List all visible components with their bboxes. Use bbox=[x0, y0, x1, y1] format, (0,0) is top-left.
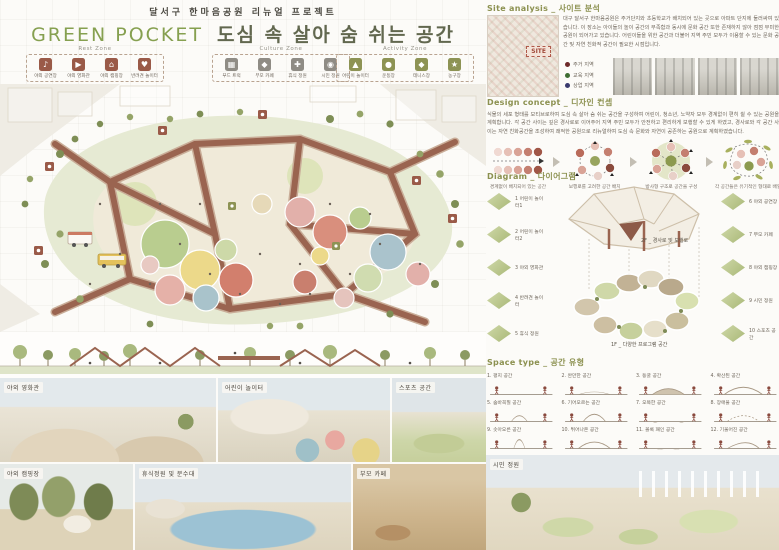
zone-item-icon: ▶ bbox=[72, 58, 85, 71]
space-type-section: Space type _ 공간 유형 1. 평지 공간 bbox=[487, 357, 779, 450]
render-photo: 야외 캠핑장 bbox=[0, 464, 133, 550]
zone-item-label: 부모 카페 bbox=[255, 73, 273, 79]
zone-item-label: 야외 캠핑장 bbox=[100, 73, 123, 79]
space-type-item: 9. 솟아오른 공간 bbox=[487, 426, 556, 450]
diagram-thumbnail bbox=[487, 193, 511, 210]
diagram-thumbnail bbox=[721, 325, 745, 342]
diagram-thumbnail bbox=[721, 259, 745, 276]
site-analysis-header: Site analysis _ 사이트 분석 bbox=[487, 3, 779, 14]
site-photo bbox=[698, 58, 737, 95]
site-photo bbox=[655, 58, 694, 95]
zone-item-icon: ♪ bbox=[39, 58, 52, 71]
site-legend-label: 교육 지역 bbox=[573, 72, 594, 79]
diagram-thumbnail bbox=[487, 325, 511, 342]
render-caption: 야외 영화관 bbox=[4, 382, 43, 393]
diagram-section: Diagram _ 다이어그램 1 어린이 놀이터1 2 어린이 놀이터2 3 … bbox=[487, 171, 779, 355]
legend-dot-icon bbox=[565, 73, 570, 78]
diagram-item: 6 야외 공연장 bbox=[721, 185, 779, 218]
space-type-label: 3. 동굴 공간 bbox=[636, 372, 705, 379]
legend-item: ▲ 어린이 놀이터 bbox=[342, 58, 369, 79]
space-type-sketch bbox=[562, 433, 631, 450]
zone-item-label: 어린이 놀이터 bbox=[342, 73, 369, 79]
space-type-item: 10. 튀어나온 공간 bbox=[562, 426, 631, 450]
diagram-item-label: 10 스포츠 공간 bbox=[749, 327, 779, 341]
zone-item-label: 휴식 정원 bbox=[288, 73, 306, 79]
space-type-label: 6. 기어오르는 공간 bbox=[562, 399, 631, 406]
space-type-sketch bbox=[562, 406, 631, 423]
diagram-list-right: 6 야외 공연장 7 부모 카페 8 야외 캠핑장 9 시민 정원 10 스포츠… bbox=[721, 185, 779, 350]
zone-item-icon: ▦ bbox=[225, 58, 238, 71]
stick-figures bbox=[719, 414, 770, 422]
zone-item-label: 농구장 bbox=[448, 73, 461, 79]
space-type-header: Space type _ 공간 유형 bbox=[487, 357, 779, 368]
render-photo: 부모 카페 bbox=[353, 464, 486, 550]
legend-item: ♪ 야외 공연장 bbox=[32, 58, 59, 79]
site-analysis-section: Site analysis _ 사이트 분석 SITE 대구 달서구 한마음공원… bbox=[487, 3, 779, 14]
space-type-sketch bbox=[711, 379, 779, 396]
stick-figures bbox=[495, 414, 546, 422]
space-type-item: 1. 평지 공간 bbox=[487, 372, 556, 396]
diagram-thumbnail bbox=[721, 226, 745, 243]
render-row-1: 야외 영화관 어린이 놀이터 스포츠 공간 bbox=[0, 378, 486, 462]
space-type-sketch bbox=[636, 406, 705, 423]
render-caption: 야외 캠핑장 bbox=[4, 468, 43, 479]
legend-item: ★ 농구장 bbox=[441, 58, 468, 79]
zone-item-icon: ✚ bbox=[291, 58, 304, 71]
site-photos bbox=[613, 58, 779, 95]
zone-item-icon: ★ bbox=[448, 58, 461, 71]
header: 달서구 한마음공원 리뉴얼 프로젝트 GREEN POCKET 도심 속 살아 … bbox=[0, 5, 486, 47]
zone-item-label: 야외 공연장 bbox=[34, 73, 57, 79]
space-type-sketch bbox=[487, 406, 556, 423]
diagram-thumbnail bbox=[487, 259, 511, 276]
diagram-item: 3 야외 영화관 bbox=[487, 251, 547, 284]
stick-figures bbox=[495, 387, 546, 395]
space-type-label: 9. 솟아오른 공간 bbox=[487, 426, 556, 433]
zone-item-label: 테니스장 bbox=[413, 73, 430, 79]
space-type-item: 3. 동굴 공간 bbox=[636, 372, 705, 396]
space-type-item: 7. 오목한 공간 bbox=[636, 399, 705, 423]
diagram-thumbnail bbox=[721, 292, 745, 309]
diagram-item-label: 3 야외 영화관 bbox=[515, 264, 543, 271]
stick-figures bbox=[644, 414, 695, 422]
space-type-label: 10. 튀어나온 공간 bbox=[562, 426, 631, 433]
culture-zone-legend: Culture Zone ▦ 푸드 트럭 ◆ 부모 카페 ✚ 휴식 정원 ◉ bbox=[212, 54, 350, 82]
stick-figures bbox=[570, 387, 621, 395]
legend-dot-icon bbox=[565, 83, 570, 88]
diagram-item-label: 9 시민 정원 bbox=[749, 297, 773, 304]
section-platform bbox=[218, 356, 280, 360]
hero-render: 시민 정원 bbox=[486, 455, 779, 550]
space-type-sketch bbox=[636, 379, 705, 396]
arrow-right-icon bbox=[706, 157, 713, 167]
arrow-right-icon bbox=[630, 157, 637, 167]
diagram-thumbnail bbox=[721, 193, 745, 210]
space-type-label: 2. 완만한 공간 bbox=[562, 372, 631, 379]
zone-item-label: 반려견 놀이터 bbox=[131, 73, 158, 79]
render-caption: 어린이 놀이터 bbox=[222, 382, 267, 393]
legend-item: ▦ 푸드 트럭 bbox=[218, 58, 245, 79]
zone-item-icon: ▲ bbox=[349, 58, 362, 71]
render-photo: 휴식정원 및 분수대 bbox=[135, 464, 351, 550]
site-legend-item: 주거 지역 bbox=[565, 61, 609, 68]
activity-zone-legend: Activity Zone ▲ 어린이 놀이터 ● 운동장 ◆ 테니스장 ★ bbox=[336, 54, 474, 82]
space-type-sketch bbox=[711, 406, 779, 423]
zone-item-icon: ◆ bbox=[258, 58, 271, 71]
render-caption: 부모 카페 bbox=[357, 468, 390, 479]
diagram-item: 9 시민 정원 bbox=[721, 284, 779, 317]
site-legend-label: 주거 지역 bbox=[573, 61, 594, 68]
activity-zone-title: Activity Zone bbox=[337, 46, 473, 52]
zone-item-label: 야외 영화관 bbox=[67, 73, 90, 79]
render-photo: 야외 영화관 bbox=[0, 378, 216, 462]
stick-figures bbox=[719, 441, 770, 449]
legend-dot-icon bbox=[565, 62, 570, 67]
legend-item: ◆ 부모 카페 bbox=[251, 58, 278, 79]
masterplan-illustration bbox=[0, 84, 486, 332]
right-panel: Site analysis _ 사이트 분석 SITE 대구 달서구 한마음공원… bbox=[487, 0, 779, 455]
legend-item: ⌂ 야외 캠핑장 bbox=[98, 58, 125, 79]
space-type-item: 11. 볼록 패인 공간 bbox=[636, 426, 705, 450]
render-row-2: 야외 캠핑장 휴식정원 및 분수대 부모 카페 bbox=[0, 464, 486, 550]
legend-item: ♥ 반려견 놀이터 bbox=[131, 58, 158, 79]
site-photo bbox=[613, 58, 652, 95]
diagram-thumbnail bbox=[487, 226, 511, 243]
render-caption: 휴식정원 및 분수대 bbox=[139, 468, 198, 479]
zone-item-label: 운동장 bbox=[382, 73, 395, 79]
section-elevation bbox=[0, 332, 486, 378]
project-subtitle: 달서구 한마음공원 리뉴얼 프로젝트 bbox=[0, 5, 486, 18]
space-type-item: 8. 장애물 공간 bbox=[711, 399, 779, 423]
culture-zone-title: Culture Zone bbox=[213, 46, 349, 52]
space-type-sketch bbox=[636, 433, 705, 450]
diagram-item-label: 7 부모 카페 bbox=[749, 231, 773, 238]
diagram-item: 10 스포츠 공간 bbox=[721, 317, 779, 350]
render-caption: 스포츠 공간 bbox=[396, 382, 435, 393]
render-photo: 스포츠 공간 bbox=[392, 378, 486, 462]
legend-item: ● 운동장 bbox=[375, 58, 402, 79]
lower-program-cells bbox=[574, 270, 699, 340]
site-legend: 주거 지역 교육 지역 상업 지역 bbox=[565, 61, 609, 93]
floor2-label: 2F _ 경사로 및 보행로 bbox=[641, 237, 688, 244]
zone-item-icon: ⌂ bbox=[105, 58, 118, 71]
space-type-label: 4. 확산된 공간 bbox=[711, 372, 779, 379]
space-type-label: 8. 장애물 공간 bbox=[711, 399, 779, 406]
space-type-label: 5. 숨바꼭질 공간 bbox=[487, 399, 556, 406]
diagram-item: 1 어린이 놀이터1 bbox=[487, 185, 547, 218]
legend-item: ✚ 휴식 정원 bbox=[284, 58, 311, 79]
site-legend-item: 상업 지역 bbox=[565, 82, 609, 89]
arrow-right-icon bbox=[553, 157, 560, 167]
section-trees bbox=[13, 344, 470, 366]
floor1-label: 1F _ 다양한 프로그램 공간 bbox=[611, 341, 667, 348]
rest-zone-legend: Rest Zone ♪ 야외 공연장 ▶ 야외 영화관 ⌂ 야외 캠핑장 ♥ bbox=[26, 54, 164, 82]
site-map-label: SITE bbox=[526, 46, 551, 57]
space-type-sketch bbox=[487, 433, 556, 450]
space-type-sketch bbox=[711, 433, 779, 450]
zone-item-label: 푸드 트럭 bbox=[222, 73, 240, 79]
space-type-label: 1. 평지 공간 bbox=[487, 372, 556, 379]
diagram-item-label: 6 야외 공연장 bbox=[749, 198, 777, 205]
space-type-label: 11. 볼록 패인 공간 bbox=[636, 426, 705, 433]
space-type-item: 12. 기울어진 공간 bbox=[711, 426, 779, 450]
diagram-item: 7 부모 카페 bbox=[721, 218, 779, 251]
diagram-item-label: 4 반려견 놀이터 bbox=[515, 294, 547, 308]
zone-legend-bar: Rest Zone ♪ 야외 공연장 ▶ 야외 영화관 ⌂ 야외 캠핑장 ♥ bbox=[0, 42, 486, 84]
site-legend-item: 교육 지역 bbox=[565, 72, 609, 79]
legend-item: ◆ 테니스장 bbox=[408, 58, 435, 79]
space-type-item: 6. 기어오르는 공간 bbox=[562, 399, 631, 423]
design-concept-text: 식물의 세포 형태를 모티브로하여 도심 속 살아 숨 쉬는 공간을 구성하여 … bbox=[487, 111, 779, 136]
space-type-sketch bbox=[562, 379, 631, 396]
space-type-label: 7. 오목한 공간 bbox=[636, 399, 705, 406]
site-analysis-text: 대구 달서구 한마음공원은 주거단지와 초등학교가 배치되어 있는 곳으로 아파… bbox=[563, 15, 779, 49]
space-type-item: 4. 확산된 공간 bbox=[711, 372, 779, 396]
space-type-sketch bbox=[487, 379, 556, 396]
zone-item-icon: ♥ bbox=[138, 58, 151, 71]
site-legend-label: 상업 지역 bbox=[573, 82, 594, 89]
site-photo bbox=[740, 58, 779, 95]
diagram-item-label: 2 어린이 놀이터2 bbox=[515, 228, 547, 242]
space-type-item: 5. 숨바꼭질 공간 bbox=[487, 399, 556, 423]
exploded-axon-diagram: 2F _ 경사로 및 보행로 1F _ 다양한 프로그램 공간 bbox=[549, 179, 719, 355]
space-type-grid: 1. 평지 공간 2. 완만한 공간 bbox=[487, 372, 779, 450]
masterplan-svg bbox=[0, 84, 486, 332]
design-concept-header: Design concept _ 디자인 컨셉 bbox=[487, 97, 779, 108]
space-type-label: 12. 기울어진 공간 bbox=[711, 426, 779, 433]
zone-item-icon: ◆ bbox=[415, 58, 428, 71]
rest-zone-title: Rest Zone bbox=[27, 46, 163, 52]
diagram-item-label: 1 어린이 놀이터1 bbox=[515, 195, 547, 209]
presentation-board: 달서구 한마음공원 리뉴얼 프로젝트 GREEN POCKET 도심 속 살아 … bbox=[0, 0, 779, 550]
section-svg bbox=[0, 332, 486, 378]
stick-figures bbox=[644, 441, 695, 449]
axon-svg bbox=[549, 179, 719, 355]
diagram-item: 5 휴식 정원 bbox=[487, 317, 547, 350]
diagram-thumbnail bbox=[487, 292, 511, 309]
stick-figures bbox=[570, 414, 621, 422]
diagram-item: 8 야외 캠핑장 bbox=[721, 251, 779, 284]
diagram-item-label: 5 휴식 정원 bbox=[515, 330, 539, 337]
render-photo: 어린이 놀이터 bbox=[218, 378, 390, 462]
diagram-item: 4 반려견 놀이터 bbox=[487, 284, 547, 317]
diagram-item-label: 8 야외 캠핑장 bbox=[749, 264, 777, 271]
left-panel: 달서구 한마음공원 리뉴얼 프로젝트 GREEN POCKET 도심 속 살아 … bbox=[0, 0, 486, 550]
diagram-item: 2 어린이 놀이터2 bbox=[487, 218, 547, 251]
stick-figures bbox=[495, 441, 546, 449]
zone-item-icon: ● bbox=[382, 58, 395, 71]
hero-caption: 시민 정원 bbox=[490, 459, 523, 470]
space-type-item: 2. 완만한 공간 bbox=[562, 372, 631, 396]
diagram-list-left: 1 어린이 놀이터1 2 어린이 놀이터2 3 야외 영화관 4 반려견 놀이터… bbox=[487, 185, 547, 350]
legend-item: ▶ 야외 영화관 bbox=[65, 58, 92, 79]
site-map: SITE bbox=[487, 15, 559, 97]
